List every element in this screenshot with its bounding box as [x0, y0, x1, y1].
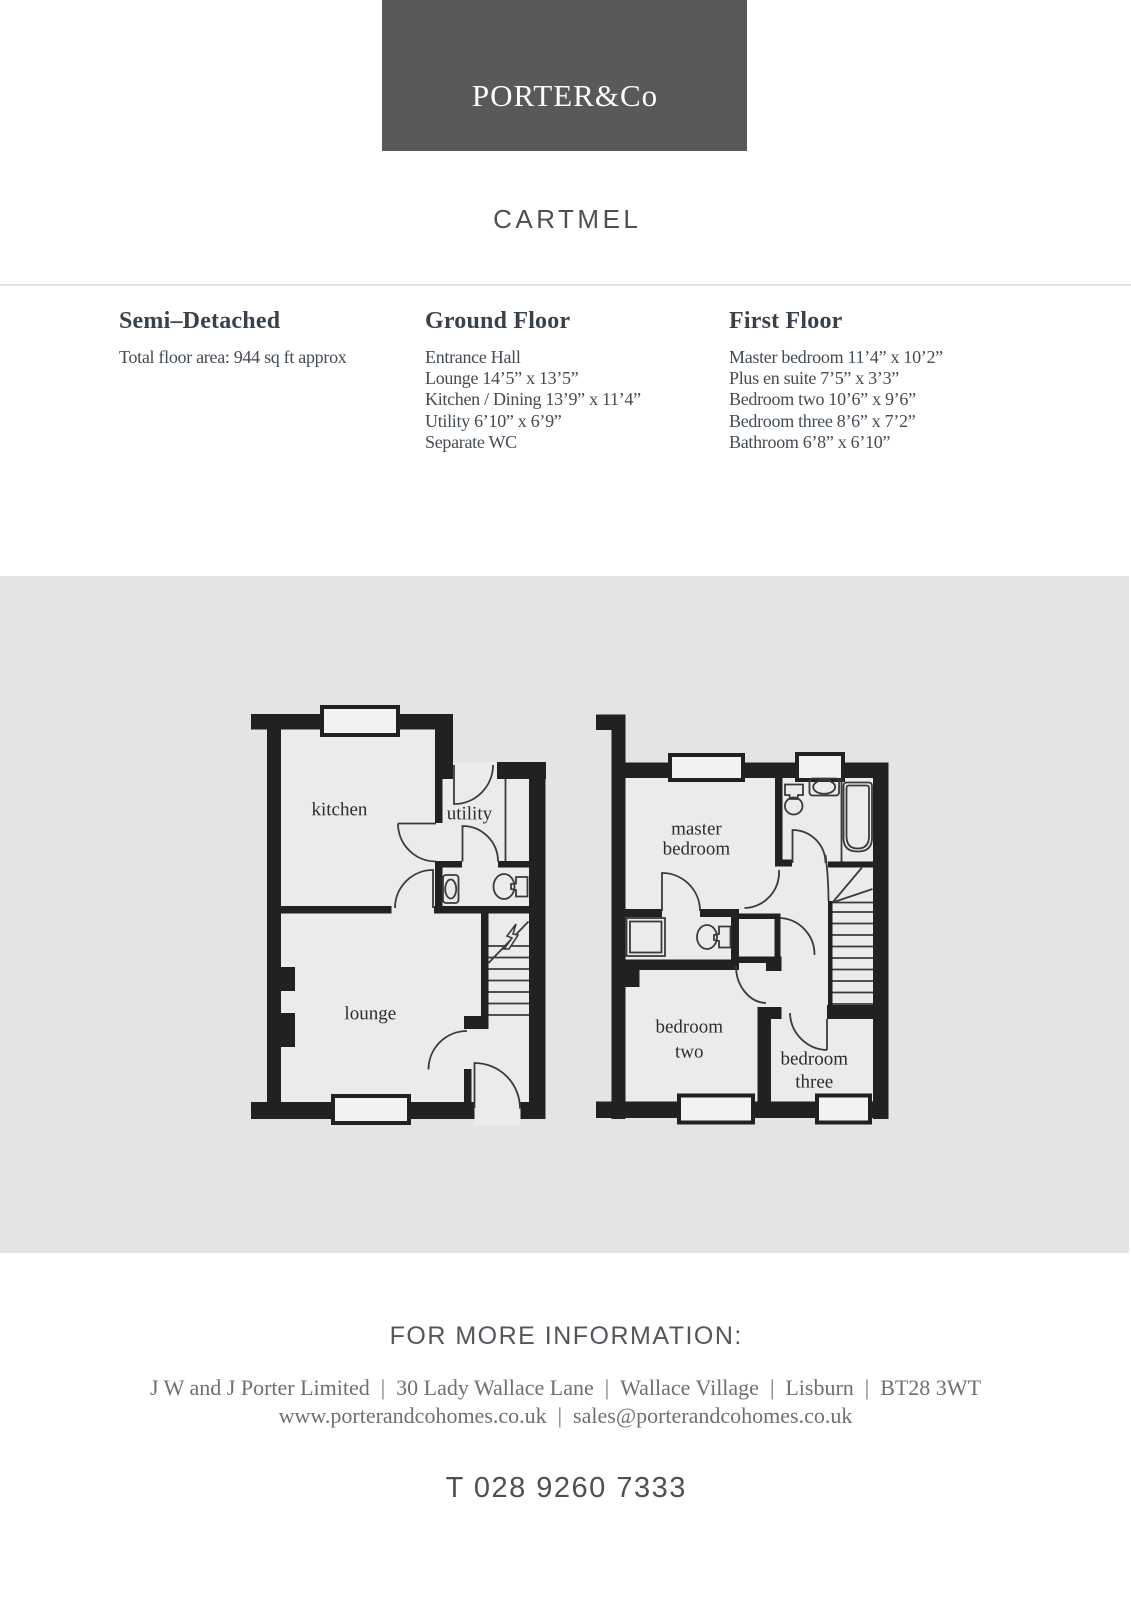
- svg-text:kitchen: kitchen: [311, 799, 367, 820]
- svg-text:lounge: lounge: [344, 1003, 396, 1024]
- svg-text:utility: utility: [447, 803, 493, 824]
- svg-text:bedroom: bedroom: [780, 1049, 848, 1070]
- svg-text:master: master: [671, 818, 722, 839]
- svg-text:bedroom: bedroom: [656, 1016, 724, 1037]
- svg-text:bedroom: bedroom: [663, 838, 731, 859]
- svg-text:two: two: [675, 1041, 704, 1062]
- svg-text:three: three: [795, 1072, 833, 1093]
